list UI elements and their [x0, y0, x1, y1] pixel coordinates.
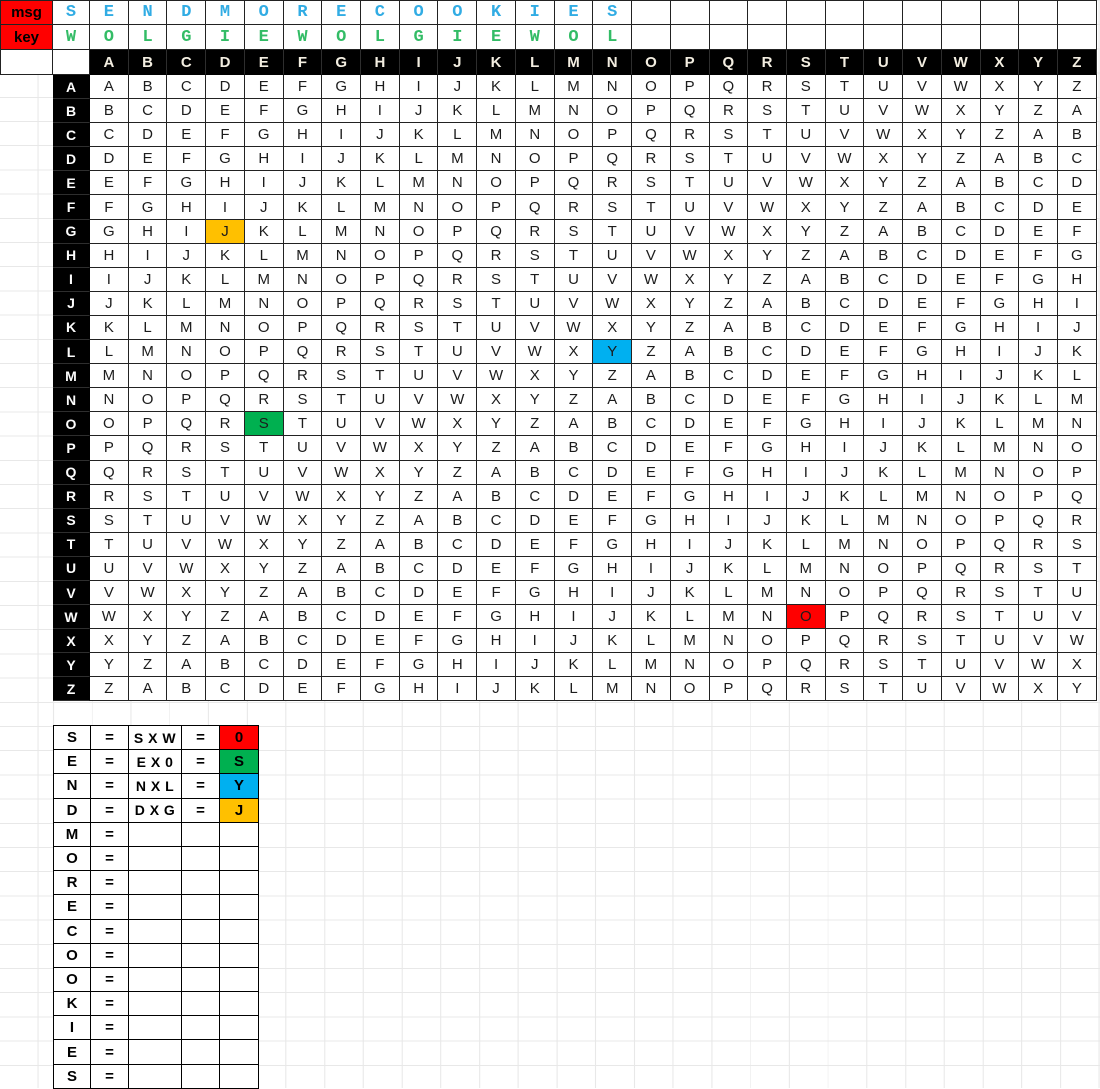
key-letter-cell[interactable]: L [593, 25, 632, 50]
cipher-cell[interactable]: X [864, 147, 903, 171]
cipher-cell[interactable]: C [826, 292, 865, 316]
cipher-cell[interactable]: K [129, 292, 168, 316]
cipher-cell[interactable]: H [632, 533, 671, 557]
cipher-cell[interactable]: R [245, 388, 284, 412]
cipher-cell[interactable]: V [438, 364, 477, 388]
cipher-cell[interactable]: Z [864, 195, 903, 219]
cipher-cell[interactable]: Z [245, 581, 284, 605]
cipher-cell[interactable]: O [361, 244, 400, 268]
cipher-cell[interactable]: C [400, 557, 439, 581]
calc-equals-cell[interactable]: = [91, 871, 129, 895]
msg-letter-cell[interactable]: I [516, 0, 555, 25]
cipher-cell[interactable]: K [671, 581, 710, 605]
calc-equals-cell[interactable] [182, 1065, 220, 1089]
cipher-cell[interactable]: H [129, 220, 168, 244]
cipher-cell[interactable]: B [1058, 123, 1097, 147]
calc-formula-cell[interactable]: S X W [129, 726, 182, 750]
cipher-cell[interactable]: N [1058, 412, 1097, 436]
cipher-cell[interactable]: O [516, 147, 555, 171]
cipher-cell[interactable]: Y [90, 653, 129, 677]
cipher-cell[interactable]: C [593, 436, 632, 460]
cipher-cell[interactable]: S [322, 364, 361, 388]
calc-equals-cell[interactable]: = [91, 920, 129, 944]
col-header-cell[interactable]: M [555, 50, 594, 75]
cipher-cell[interactable]: J [400, 99, 439, 123]
cipher-cell[interactable]: H [90, 244, 129, 268]
cipher-cell[interactable]: Y [322, 509, 361, 533]
cipher-cell[interactable]: H [593, 557, 632, 581]
cipher-cell[interactable]: S [1019, 557, 1058, 581]
cipher-cell[interactable]: S [438, 292, 477, 316]
cipher-cell[interactable]: M [90, 364, 129, 388]
cipher-cell[interactable]: J [1058, 316, 1097, 340]
cipher-cell[interactable]: X [167, 581, 206, 605]
calc-result-cell[interactable]: 0 [220, 726, 259, 750]
cipher-cell[interactable]: N [555, 99, 594, 123]
cipher-cell[interactable]: I [516, 629, 555, 653]
row-header-cell[interactable]: V [53, 581, 90, 605]
calc-letter-cell[interactable]: O [54, 944, 91, 968]
cipher-cell[interactable]: B [438, 509, 477, 533]
cipher-cell[interactable]: H [864, 388, 903, 412]
col-header-cell[interactable]: H [361, 50, 400, 75]
cipher-cell[interactable]: U [438, 340, 477, 364]
calc-letter-cell[interactable]: N [54, 774, 91, 798]
cipher-cell[interactable]: F [593, 509, 632, 533]
cipher-cell[interactable]: R [555, 195, 594, 219]
cipher-cell[interactable]: X [555, 340, 594, 364]
empty-cell[interactable] [632, 25, 671, 50]
cipher-cell[interactable]: R [632, 147, 671, 171]
cipher-cell[interactable]: E [438, 581, 477, 605]
cipher-cell[interactable]: M [129, 340, 168, 364]
cipher-cell[interactable]: U [826, 99, 865, 123]
cipher-cell[interactable]: R [593, 171, 632, 195]
cipher-cell[interactable]: P [981, 509, 1020, 533]
empty-cell[interactable] [671, 25, 710, 50]
cipher-cell[interactable]: O [864, 557, 903, 581]
calc-equals-cell[interactable]: = [91, 847, 129, 871]
cipher-cell[interactable]: S [129, 485, 168, 509]
calc-equals-cell[interactable]: = [91, 944, 129, 968]
cipher-cell[interactable]: Q [826, 629, 865, 653]
cipher-cell[interactable]: Q [1019, 509, 1058, 533]
cipher-cell[interactable]: P [864, 581, 903, 605]
cipher-cell[interactable]: T [710, 147, 749, 171]
cipher-cell[interactable]: L [129, 316, 168, 340]
cipher-cell[interactable]: F [826, 364, 865, 388]
cipher-cell[interactable]: F [206, 123, 245, 147]
cipher-cell[interactable]: C [322, 605, 361, 629]
msg-label-cell[interactable]: msg [0, 0, 53, 25]
cipher-cell[interactable]: W [206, 533, 245, 557]
empty-cell[interactable] [1019, 25, 1058, 50]
cipher-cell[interactable]: J [671, 557, 710, 581]
cipher-cell[interactable]: X [477, 388, 516, 412]
cipher-cell[interactable]: B [245, 629, 284, 653]
cipher-cell[interactable]: W [710, 220, 749, 244]
col-header-cell[interactable]: S [787, 50, 826, 75]
cipher-cell[interactable]: I [90, 268, 129, 292]
cipher-cell[interactable]: O [322, 268, 361, 292]
cipher-cell[interactable]: B [826, 268, 865, 292]
cipher-cell[interactable]: P [90, 436, 129, 460]
cipher-cell[interactable]: J [593, 605, 632, 629]
cipher-cell[interactable]: M [438, 147, 477, 171]
cipher-cell[interactable]: Q [245, 364, 284, 388]
cipher-cell[interactable]: S [516, 244, 555, 268]
cipher-cell[interactable]: A [710, 316, 749, 340]
cipher-cell[interactable]: M [748, 581, 787, 605]
col-header-cell[interactable]: A [90, 50, 129, 75]
cipher-cell[interactable]: R [671, 123, 710, 147]
calc-equals-cell[interactable]: = [91, 726, 129, 750]
row-header-cell[interactable]: Z [53, 677, 90, 701]
cipher-cell[interactable]: M [245, 268, 284, 292]
cipher-cell[interactable]: S [1058, 533, 1097, 557]
cipher-cell[interactable]: W [400, 412, 439, 436]
cipher-cell[interactable]: V [864, 99, 903, 123]
cipher-cell[interactable]: K [1058, 340, 1097, 364]
calc-result-cell[interactable] [220, 944, 259, 968]
cipher-cell[interactable]: N [167, 340, 206, 364]
cipher-cell[interactable]: C [1019, 171, 1058, 195]
cipher-cell[interactable]: Q [903, 581, 942, 605]
cipher-cell[interactable]: J [284, 171, 323, 195]
cipher-cell[interactable]: I [981, 340, 1020, 364]
cipher-cell[interactable]: U [671, 195, 710, 219]
cipher-cell[interactable]: N [981, 461, 1020, 485]
cipher-cell[interactable]: U [942, 653, 981, 677]
cipher-cell[interactable]: Z [632, 340, 671, 364]
cipher-cell[interactable]: T [90, 533, 129, 557]
cipher-cell[interactable]: Q [206, 388, 245, 412]
cipher-cell[interactable]: C [284, 629, 323, 653]
cipher-cell[interactable]: B [361, 557, 400, 581]
cipher-cell[interactable]: P [284, 316, 323, 340]
cipher-cell[interactable]: L [864, 485, 903, 509]
cipher-cell[interactable]: S [826, 677, 865, 701]
calc-equals-cell[interactable]: = [91, 968, 129, 992]
calc-equals-cell[interactable]: = [91, 1065, 129, 1089]
cipher-cell[interactable]: E [129, 147, 168, 171]
row-header-cell[interactable]: O [53, 412, 90, 436]
calc-letter-cell[interactable]: O [54, 847, 91, 871]
row-header-cell[interactable]: E [53, 171, 90, 195]
cipher-cell[interactable]: X [438, 412, 477, 436]
cipher-cell[interactable]: I [245, 171, 284, 195]
cipher-cell[interactable]: J [787, 485, 826, 509]
cipher-cell[interactable]: W [748, 195, 787, 219]
cipher-cell[interactable]: S [864, 653, 903, 677]
cipher-cell[interactable]: S [632, 171, 671, 195]
cipher-cell[interactable]: E [322, 653, 361, 677]
cipher-cell[interactable]: S [748, 99, 787, 123]
cipher-cell[interactable]: I [555, 605, 594, 629]
cipher-cell[interactable]: R [167, 436, 206, 460]
cipher-cell[interactable]: H [826, 412, 865, 436]
cipher-cell[interactable]: L [710, 581, 749, 605]
cipher-cell[interactable]: A [245, 605, 284, 629]
cipher-cell[interactable]: X [1019, 677, 1058, 701]
cipher-cell[interactable]: V [284, 461, 323, 485]
cipher-cell[interactable]: H [1058, 268, 1097, 292]
cipher-cell[interactable]: I [284, 147, 323, 171]
cipher-cell[interactable]: P [1019, 485, 1058, 509]
row-header-cell[interactable]: P [53, 436, 90, 460]
cipher-cell[interactable]: J [710, 533, 749, 557]
cipher-cell[interactable]: T [1058, 557, 1097, 581]
cipher-cell[interactable]: I [864, 412, 903, 436]
cipher-cell[interactable]: Q [129, 436, 168, 460]
cipher-cell[interactable]: A [284, 581, 323, 605]
calc-letter-cell[interactable]: R [54, 871, 91, 895]
msg-letter-cell[interactable]: S [53, 0, 90, 25]
row-header-cell[interactable]: I [53, 268, 90, 292]
cipher-cell[interactable]: E [981, 244, 1020, 268]
cipher-cell[interactable]: I [167, 220, 206, 244]
cipher-cell[interactable]: M [555, 75, 594, 99]
cipher-cell[interactable]: R [438, 268, 477, 292]
cipher-cell[interactable]: A [826, 244, 865, 268]
cipher-cell[interactable]: G [593, 533, 632, 557]
calc-formula-cell[interactable] [129, 895, 182, 919]
cipher-cell[interactable]: D [167, 99, 206, 123]
msg-letter-cell[interactable]: E [322, 0, 361, 25]
cipher-cell[interactable]: Y [245, 557, 284, 581]
cipher-cell[interactable]: U [284, 436, 323, 460]
cipher-cell[interactable]: X [903, 123, 942, 147]
calc-formula-cell[interactable] [129, 1065, 182, 1089]
col-header-cell[interactable]: K [477, 50, 516, 75]
cipher-cell[interactable]: H [284, 123, 323, 147]
cipher-cell[interactable]: J [632, 581, 671, 605]
cipher-cell[interactable]: U [1019, 605, 1058, 629]
cipher-cell[interactable]: O [129, 388, 168, 412]
cipher-cell[interactable]: V [400, 388, 439, 412]
cipher-cell[interactable]: A [981, 147, 1020, 171]
cipher-cell[interactable]: L [1058, 364, 1097, 388]
empty-cell[interactable] [671, 0, 710, 25]
calc-letter-cell[interactable]: E [54, 895, 91, 919]
cipher-cell[interactable]: U [90, 557, 129, 581]
cipher-cell[interactable]: A [400, 509, 439, 533]
cipher-cell[interactable]: G [477, 605, 516, 629]
cipher-cell[interactable]: R [748, 75, 787, 99]
empty-cell[interactable] [632, 0, 671, 25]
msg-letter-cell[interactable]: O [438, 0, 477, 25]
cipher-cell[interactable]: D [942, 244, 981, 268]
cipher-cell[interactable]: Z [284, 557, 323, 581]
cipher-cell[interactable]: R [1058, 509, 1097, 533]
col-header-cell[interactable]: Q [710, 50, 749, 75]
cipher-cell[interactable]: A [438, 485, 477, 509]
cipher-cell[interactable]: N [632, 677, 671, 701]
cipher-cell[interactable]: T [361, 364, 400, 388]
cipher-cell[interactable]: R [981, 557, 1020, 581]
cipher-cell[interactable]: C [632, 412, 671, 436]
cipher-cell[interactable]: R [322, 340, 361, 364]
cipher-cell[interactable]: Q [477, 220, 516, 244]
cipher-cell[interactable]: Y [632, 316, 671, 340]
cipher-cell[interactable]: O [245, 316, 284, 340]
cipher-cell[interactable]: D [864, 292, 903, 316]
row-header-cell[interactable]: B [53, 99, 90, 123]
cipher-cell[interactable]: X [516, 364, 555, 388]
cipher-cell[interactable]: O [284, 292, 323, 316]
calc-equals-cell[interactable] [182, 1016, 220, 1040]
cipher-cell[interactable]: J [942, 388, 981, 412]
cipher-cell[interactable]: X [981, 75, 1020, 99]
cipher-cell[interactable]: Z [671, 316, 710, 340]
cipher-cell[interactable]: F [322, 677, 361, 701]
cipher-cell[interactable]: W [593, 292, 632, 316]
cipher-cell[interactable]: O [981, 485, 1020, 509]
msg-letter-cell[interactable]: E [555, 0, 594, 25]
cipher-cell[interactable]: R [129, 461, 168, 485]
calc-equals-cell[interactable]: = [182, 750, 220, 774]
cipher-cell[interactable]: Z [129, 653, 168, 677]
calc-formula-cell[interactable] [129, 920, 182, 944]
calc-equals-cell[interactable] [182, 847, 220, 871]
cipher-cell[interactable]: H [438, 653, 477, 677]
calc-letter-cell[interactable]: S [54, 726, 91, 750]
cipher-cell[interactable]: W [129, 581, 168, 605]
cipher-cell[interactable]: F [361, 653, 400, 677]
col-header-cell[interactable]: L [516, 50, 555, 75]
cipher-cell[interactable]: B [477, 485, 516, 509]
cipher-cell[interactable]: M [206, 292, 245, 316]
cipher-cell[interactable]: K [206, 244, 245, 268]
cipher-cell[interactable]: D [710, 388, 749, 412]
cipher-cell[interactable]: I [593, 581, 632, 605]
cipher-cell[interactable]: Z [710, 292, 749, 316]
calc-result-cell[interactable] [220, 920, 259, 944]
cipher-cell[interactable]: E [206, 99, 245, 123]
cipher-cell[interactable]: G [245, 123, 284, 147]
cipher-cell[interactable]: O [671, 677, 710, 701]
cipher-cell[interactable]: O [477, 171, 516, 195]
cipher-cell[interactable]: B [903, 220, 942, 244]
cipher-cell[interactable]: Q [322, 316, 361, 340]
cipher-cell[interactable]: U [477, 316, 516, 340]
cipher-cell[interactable]: Q [516, 195, 555, 219]
msg-letter-cell[interactable]: C [361, 0, 400, 25]
calc-letter-cell[interactable]: I [54, 1016, 91, 1040]
cipher-cell[interactable]: V [981, 653, 1020, 677]
cipher-cell[interactable]: S [206, 436, 245, 460]
cipher-cell[interactable]: P [206, 364, 245, 388]
cipher-cell[interactable]: J [361, 123, 400, 147]
cipher-cell[interactable]: J [438, 75, 477, 99]
cipher-cell[interactable]: C [477, 509, 516, 533]
cipher-cell[interactable]: W [516, 340, 555, 364]
cipher-cell[interactable]: I [206, 195, 245, 219]
corner-cell[interactable] [53, 50, 90, 75]
key-letter-cell[interactable]: E [477, 25, 516, 50]
row-header-cell[interactable]: S [53, 509, 90, 533]
cipher-cell[interactable]: S [593, 195, 632, 219]
cipher-cell[interactable]: K [942, 412, 981, 436]
cipher-cell[interactable]: J [516, 653, 555, 677]
cipher-cell[interactable]: Y [671, 292, 710, 316]
cipher-cell[interactable]: W [942, 75, 981, 99]
cipher-cell[interactable]: Q [787, 653, 826, 677]
cipher-cell[interactable]: J [826, 461, 865, 485]
cipher-cell[interactable]: Y [555, 364, 594, 388]
cipher-cell[interactable]: O [1058, 436, 1097, 460]
cipher-cell[interactable]: T [632, 195, 671, 219]
cipher-cell[interactable]: V [206, 509, 245, 533]
cipher-cell[interactable]: K [322, 171, 361, 195]
cipher-cell[interactable]: U [129, 533, 168, 557]
key-letter-cell[interactable]: G [167, 25, 206, 50]
cipher-cell[interactable]: N [438, 171, 477, 195]
cipher-cell[interactable]: E [864, 316, 903, 340]
cipher-cell[interactable]: F [748, 412, 787, 436]
cipher-cell[interactable]: B [167, 677, 206, 701]
cipher-cell[interactable]: I [129, 244, 168, 268]
calc-formula-cell[interactable]: N X L [129, 774, 182, 798]
empty-cell[interactable] [981, 25, 1020, 50]
cipher-cell[interactable]: L [903, 461, 942, 485]
cipher-cell[interactable]: Z [516, 412, 555, 436]
cipher-cell[interactable]: U [322, 412, 361, 436]
row-header-cell[interactable]: M [53, 364, 90, 388]
cipher-cell[interactable]: K [245, 220, 284, 244]
highlight-cell[interactable]: S [245, 412, 284, 436]
cipher-cell[interactable]: F [632, 485, 671, 509]
cipher-cell[interactable]: G [632, 509, 671, 533]
cipher-cell[interactable]: N [322, 244, 361, 268]
calc-equals-cell[interactable]: = [91, 992, 129, 1016]
empty-cell[interactable] [903, 0, 942, 25]
cipher-cell[interactable]: D [1019, 195, 1058, 219]
cipher-cell[interactable]: B [748, 316, 787, 340]
cipher-cell[interactable]: U [710, 171, 749, 195]
cipher-cell[interactable]: U [787, 123, 826, 147]
cipher-cell[interactable]: T [438, 316, 477, 340]
cipher-cell[interactable]: S [555, 220, 594, 244]
cipher-cell[interactable]: M [1019, 412, 1058, 436]
cipher-cell[interactable]: P [361, 268, 400, 292]
cipher-cell[interactable]: W [671, 244, 710, 268]
cipher-cell[interactable]: R [361, 316, 400, 340]
calc-result-cell[interactable]: S [220, 750, 259, 774]
msg-letter-cell[interactable]: K [477, 0, 516, 25]
calc-equals-cell[interactable]: = [91, 750, 129, 774]
cipher-cell[interactable]: B [206, 653, 245, 677]
cipher-cell[interactable]: H [516, 605, 555, 629]
cipher-cell[interactable]: X [942, 99, 981, 123]
cipher-cell[interactable]: A [361, 533, 400, 557]
key-letter-cell[interactable]: L [361, 25, 400, 50]
cipher-cell[interactable]: J [322, 147, 361, 171]
cipher-cell[interactable]: I [671, 533, 710, 557]
calc-result-cell[interactable] [220, 871, 259, 895]
cipher-cell[interactable]: E [710, 412, 749, 436]
cipher-cell[interactable]: C [710, 364, 749, 388]
calc-letter-cell[interactable]: E [54, 750, 91, 774]
cipher-cell[interactable]: O [903, 533, 942, 557]
cipher-cell[interactable]: L [981, 412, 1020, 436]
cipher-cell[interactable]: S [710, 123, 749, 147]
empty-cell[interactable] [826, 0, 865, 25]
cipher-cell[interactable]: U [400, 364, 439, 388]
calc-equals-cell[interactable] [182, 895, 220, 919]
cipher-cell[interactable]: H [981, 316, 1020, 340]
cipher-cell[interactable]: K [1019, 364, 1058, 388]
